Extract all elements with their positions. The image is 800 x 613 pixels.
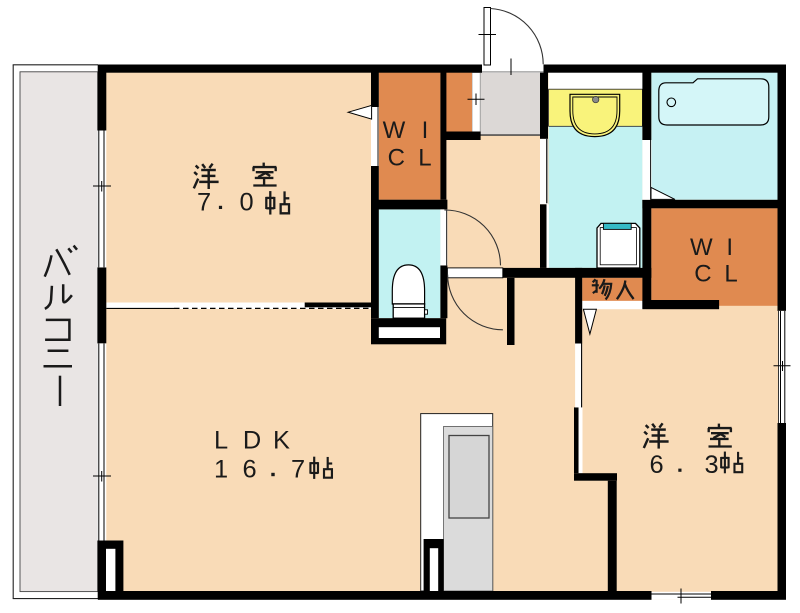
svg-text:C: C	[694, 260, 711, 287]
svg-text:L: L	[214, 426, 228, 454]
svg-text:0: 0	[239, 189, 253, 217]
svg-text:W: W	[690, 234, 713, 261]
svg-text:7: 7	[291, 455, 305, 483]
svg-text:L: L	[724, 260, 737, 287]
svg-text:6: 6	[242, 455, 256, 483]
svg-text:W: W	[383, 117, 406, 144]
svg-text:3: 3	[704, 451, 718, 479]
svg-text:1: 1	[214, 455, 228, 483]
svg-text:L: L	[418, 144, 431, 171]
svg-text:D: D	[243, 426, 261, 454]
svg-text:K: K	[273, 426, 290, 454]
svg-text:7: 7	[197, 189, 211, 217]
svg-text:I: I	[422, 117, 429, 144]
svg-text:6: 6	[649, 451, 663, 479]
svg-text:I: I	[726, 234, 733, 261]
svg-text:C: C	[388, 144, 405, 171]
